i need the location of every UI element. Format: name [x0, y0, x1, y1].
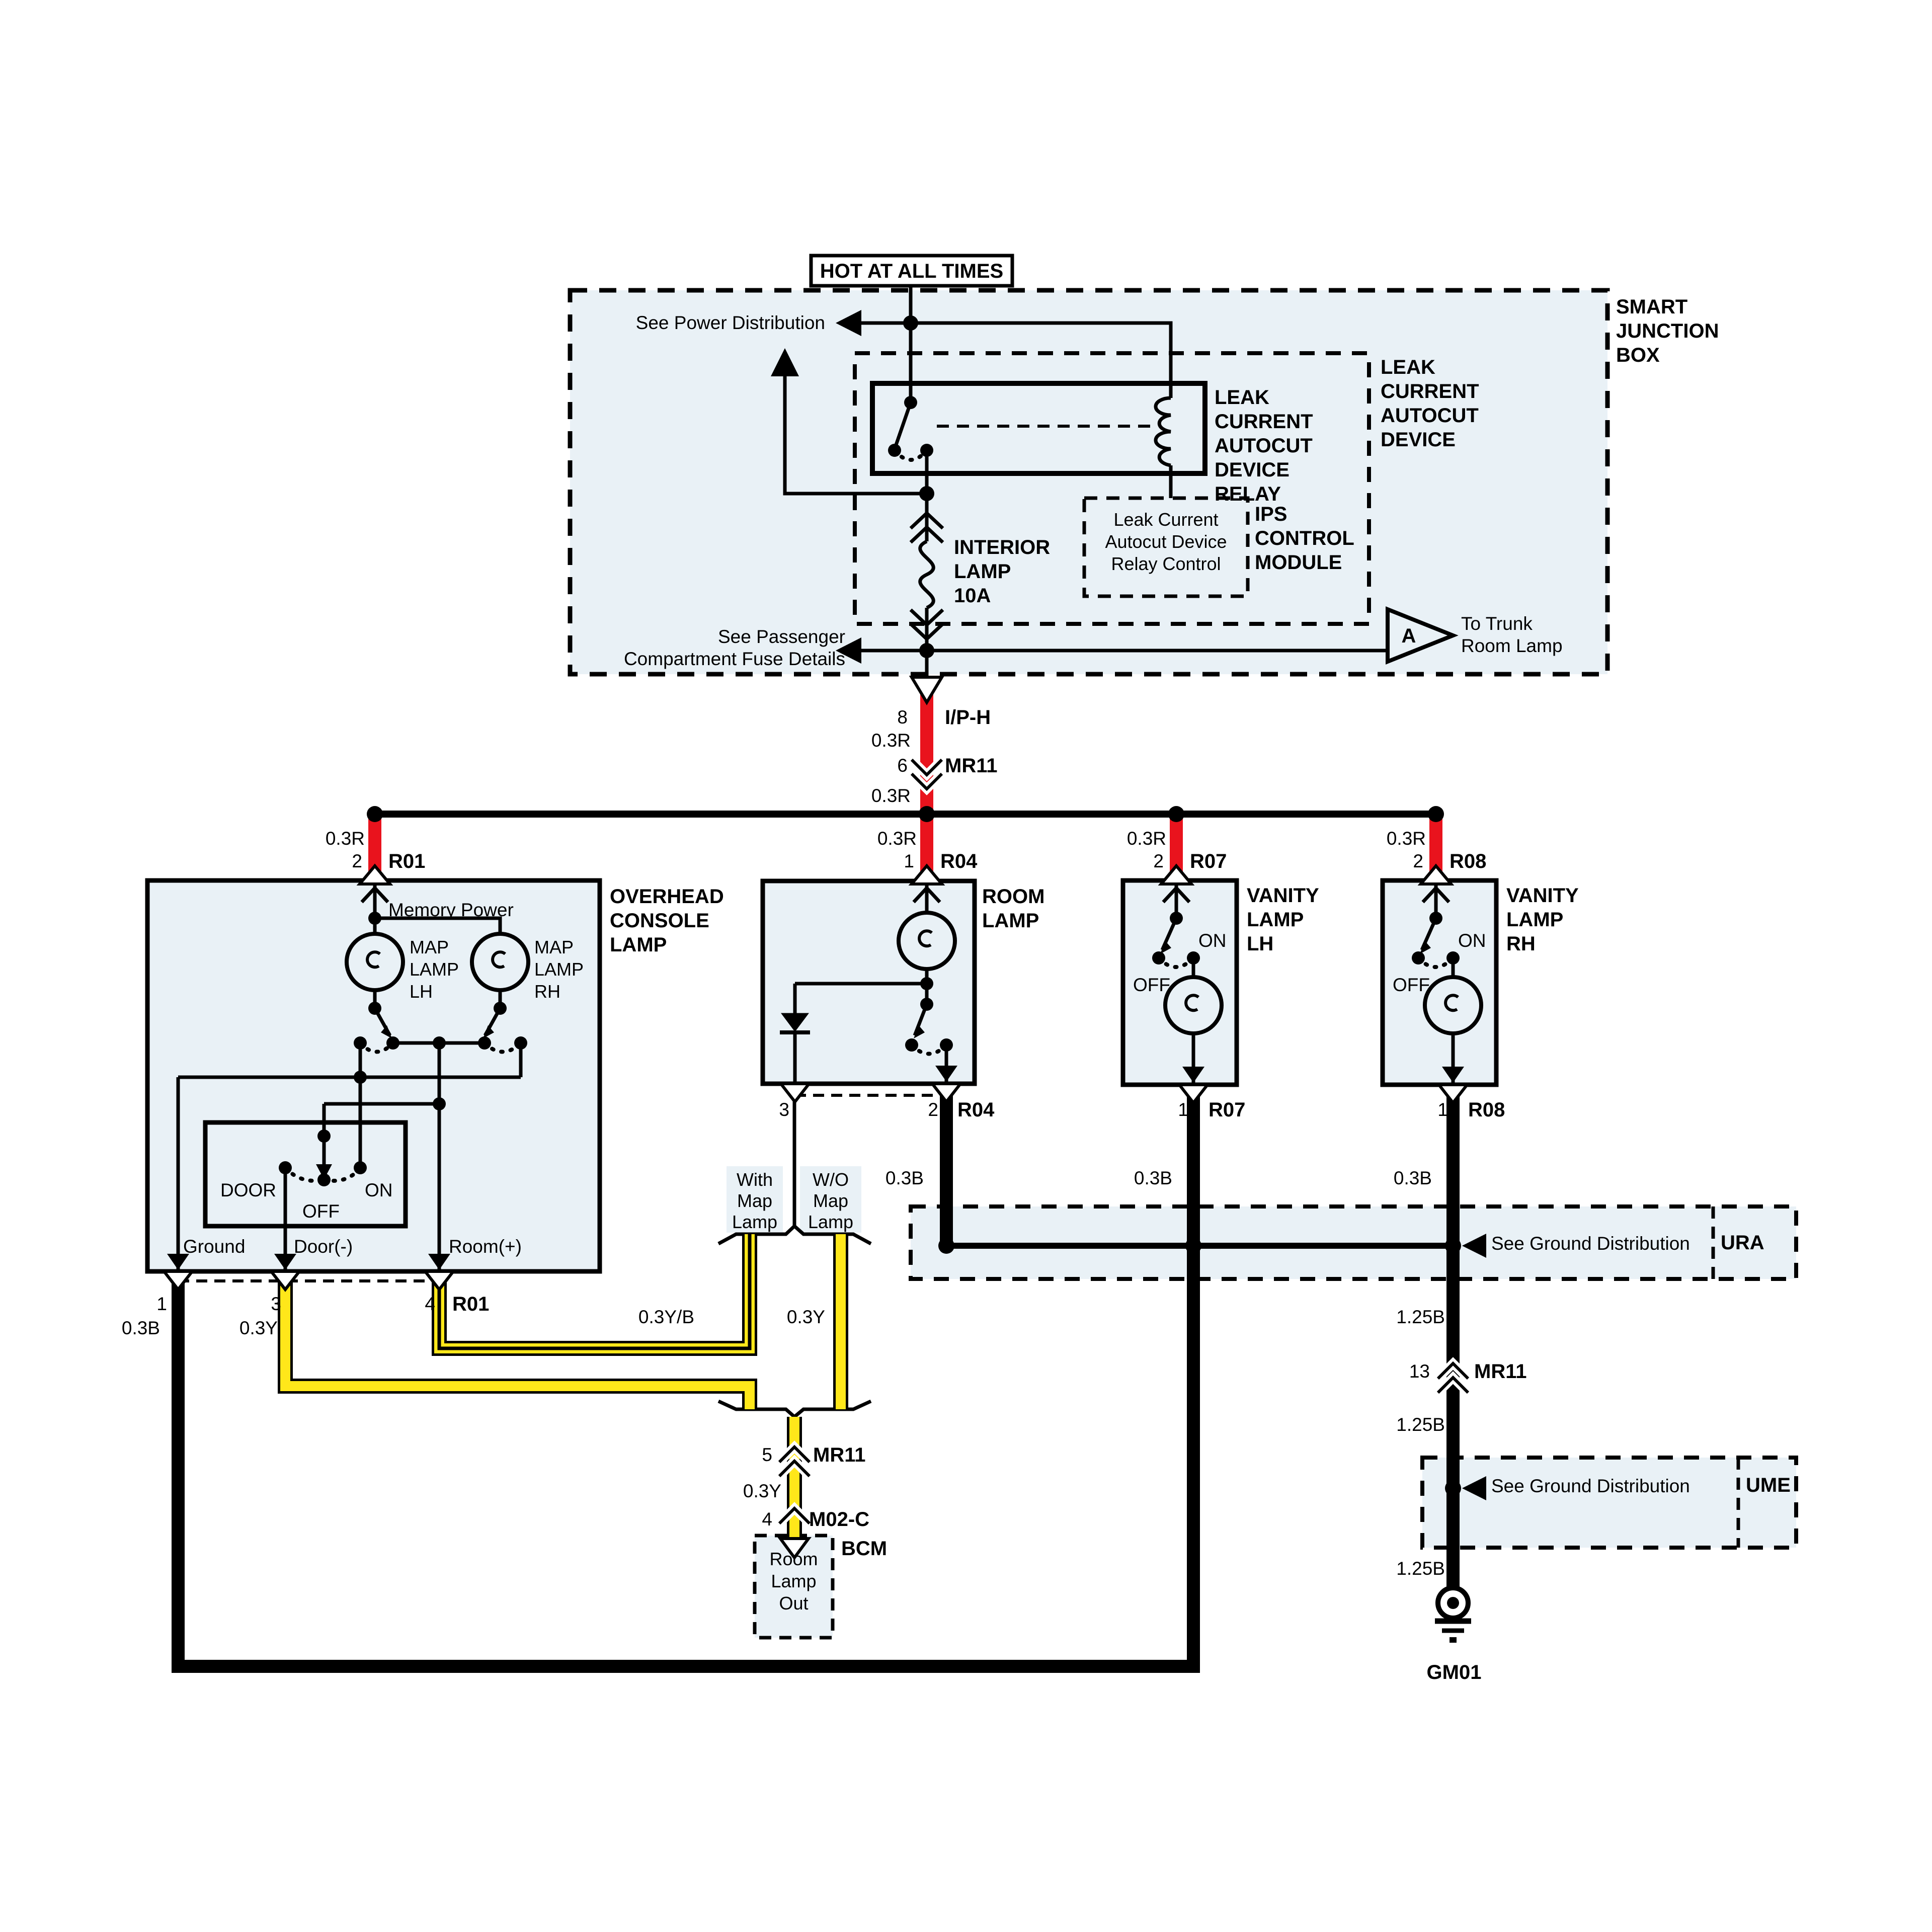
console-label-2: CONSOLE: [610, 909, 709, 933]
r01-name-top: R01: [388, 849, 425, 873]
r04-ground-pin: 2: [906, 1099, 938, 1121]
bcm-signal-3: Out: [756, 1593, 832, 1614]
sjb-label-2: JUNCTION: [1616, 319, 1719, 343]
room-lamp-label-1: ROOM: [982, 884, 1044, 909]
map-rh-label-3: RH: [534, 981, 560, 1002]
ume-see-ground-label: See Ground Distribution: [1491, 1475, 1690, 1497]
bcm-label: BCM: [841, 1537, 887, 1561]
vanity-lh-off-label: OFF: [1133, 974, 1170, 996]
mr11-5-pin: 5: [740, 1444, 772, 1466]
console-room-exit-chevron: [425, 1271, 453, 1290]
r01-name-bottom: R01: [452, 1292, 489, 1316]
wire-03b-room: 0.3B: [863, 1167, 924, 1189]
fuse-label-2: LAMP: [954, 559, 1011, 584]
r08-name-bottom: R08: [1468, 1098, 1505, 1122]
console-on-label: ON: [365, 1179, 393, 1201]
console-label-3: LAMP: [610, 933, 667, 957]
r08-ground-pin: 1: [1416, 1099, 1448, 1121]
ume-box-fill: [1422, 1458, 1796, 1548]
trunk-ref-letter: A: [1389, 624, 1429, 648]
ground-terminal-label: Ground: [183, 1236, 245, 1258]
mr11-5-name: MR11: [813, 1443, 866, 1467]
wire-03r-r08: 0.3R: [1371, 828, 1426, 850]
vanity-rh-label-3: RH: [1506, 932, 1536, 956]
vanity-rh-bulb: [1425, 977, 1481, 1033]
diagram-art: [0, 0, 1932, 1932]
ips-label-1: IPS: [1255, 502, 1287, 526]
mr11-6-pin: 6: [875, 755, 908, 777]
relay-label-4: DEVICE: [1215, 458, 1290, 482]
wo-map-label-2: Map: [800, 1190, 861, 1212]
smart-junction-box-fill: [570, 290, 1607, 674]
ips-signal-2: Autocut Device: [1085, 531, 1247, 552]
with-map-label-3: Lamp: [727, 1212, 783, 1233]
fuse-label-1: INTERIOR: [954, 535, 1050, 559]
wiring-diagram: HOT AT ALL TIMES See Power Distribution …: [0, 0, 1932, 1932]
with-map-label-1: With: [727, 1169, 783, 1190]
lcad-label-2: CURRENT: [1381, 379, 1479, 404]
mr11-13-pin: 13: [1390, 1360, 1430, 1383]
ips-signal-3: Relay Control: [1085, 553, 1247, 575]
relay-label-2: CURRENT: [1215, 410, 1313, 434]
r01-feed-pin: 2: [330, 850, 362, 872]
wire-125b-2: 1.25B: [1372, 1414, 1445, 1436]
r07-name-top: R07: [1190, 849, 1227, 873]
vanity-rh-on-label: ON: [1458, 930, 1486, 952]
vanity-lh-bulb: [1165, 977, 1222, 1033]
wire-125b-1: 1.25B: [1372, 1306, 1445, 1328]
see-passenger-label-2: Compartment Fuse Details: [553, 648, 845, 670]
m02c-name: M02-C: [809, 1507, 869, 1532]
bcm-signal-2: Lamp: [756, 1571, 832, 1592]
wire-03b-console: 0.3B: [100, 1317, 160, 1339]
map-lamp-rh-bulb: [472, 934, 528, 990]
vanity-lh-label-2: LAMP: [1247, 908, 1304, 932]
mr11-13-name: MR11: [1474, 1359, 1527, 1384]
iph-pin: 8: [875, 706, 908, 729]
bcm-signal-1: Room: [756, 1549, 832, 1570]
wire-03y-womap: 0.3Y: [765, 1306, 825, 1328]
vanity-rh-label-2: LAMP: [1506, 908, 1563, 932]
mr11-6-name: MR11: [945, 754, 998, 778]
m02c-pin: 4: [740, 1508, 772, 1531]
vanity-lh-label-3: LH: [1247, 932, 1273, 956]
wire-03b-vanity-lh: 0.3B: [1112, 1167, 1172, 1189]
map-lamp-lh-bulb: [347, 934, 403, 990]
map-rh-label-1: MAP: [534, 937, 574, 958]
ips-label-3: MODULE: [1255, 550, 1342, 575]
ume-code: UME: [1746, 1473, 1791, 1497]
r04-name-top: R04: [940, 849, 977, 873]
r07-name-bottom: R07: [1209, 1098, 1245, 1122]
see-passenger-label-1: See Passenger: [553, 626, 845, 648]
lcad-label-1: LEAK: [1381, 355, 1435, 379]
wo-map-label-1: W/O: [800, 1169, 861, 1190]
wire-03r-r04: 0.3R: [861, 828, 917, 850]
hot-at-all-times-label: HOT AT ALL TIMES: [811, 259, 1012, 283]
wire-03r-main-2: 0.3R: [855, 785, 911, 807]
to-trunk-label-2: Room Lamp: [1461, 635, 1563, 657]
wire-03yb-label: 0.3Y/B: [624, 1306, 694, 1328]
wire-03y-console: 0.3Y: [217, 1317, 278, 1339]
room-lamp-label-2: LAMP: [982, 909, 1039, 933]
with-map-label-2: Map: [727, 1190, 783, 1212]
map-lh-label-3: LH: [410, 981, 433, 1002]
r04-feed-pin: 1: [882, 850, 914, 872]
see-power-distribution-label: See Power Distribution: [604, 312, 825, 334]
gm01-ground-symbol: [1435, 1588, 1471, 1643]
wire-125b-3: 1.25B: [1372, 1558, 1445, 1580]
wire-03r-main-1: 0.3R: [855, 730, 911, 752]
map-lh-label-2: LAMP: [410, 959, 459, 980]
r04-diode-pin: 3: [757, 1099, 789, 1121]
relay-label-1: LEAK: [1215, 385, 1269, 410]
wire-03r-r07: 0.3R: [1111, 828, 1166, 850]
map-lh-label-1: MAP: [410, 937, 449, 958]
console-label-1: OVERHEAD: [610, 884, 724, 909]
sjb-label-3: BOX: [1616, 343, 1660, 367]
console-off-label: OFF: [302, 1200, 340, 1223]
wire-03y-bcm: 0.3Y: [721, 1480, 781, 1502]
to-trunk-label-1: To Trunk: [1461, 613, 1533, 635]
vanity-lh-label-1: VANITY: [1247, 883, 1319, 908]
ura-code: URA: [1721, 1231, 1764, 1255]
lcad-label-4: DEVICE: [1381, 428, 1456, 452]
r07-feed-pin: 2: [1132, 850, 1164, 872]
vanity-rh-label-1: VANITY: [1506, 883, 1579, 908]
lcad-label-3: AUTOCUT: [1381, 404, 1479, 428]
r01-door-pin: 3: [249, 1293, 281, 1315]
vanity-rh-off-label: OFF: [1393, 974, 1430, 996]
room-lamp-bulb: [899, 913, 955, 969]
door-label: DOOR: [220, 1179, 276, 1201]
map-rh-label-2: LAMP: [534, 959, 584, 980]
wire-03b-vanity-rh: 0.3B: [1372, 1167, 1432, 1189]
relay-label-3: AUTOCUT: [1215, 434, 1313, 458]
iph-name: I/P-H: [945, 705, 991, 730]
memory-power-label: Memory Power: [388, 899, 514, 921]
fuse-label-3: 10A: [954, 584, 991, 608]
r01-ground-pin: 1: [135, 1293, 167, 1315]
r07-ground-pin: 1: [1156, 1099, 1188, 1121]
sjb-label-1: SMART: [1616, 295, 1687, 319]
ips-label-2: CONTROL: [1255, 526, 1354, 550]
door-neg-terminal-label: Door(-): [294, 1236, 353, 1258]
wire-03r-r01: 0.3R: [309, 828, 365, 850]
ips-signal-1: Leak Current: [1085, 509, 1247, 530]
gm01-label: GM01: [1418, 1660, 1490, 1684]
ura-see-ground-label: See Ground Distribution: [1491, 1233, 1690, 1255]
r08-name-top: R08: [1450, 849, 1486, 873]
r04-name-bottom: R04: [957, 1098, 994, 1122]
wo-map-label-3: Lamp: [800, 1212, 861, 1233]
r08-feed-pin: 2: [1391, 850, 1423, 872]
vanity-lh-on-label: ON: [1198, 930, 1227, 952]
r01-room-pin: 4: [403, 1293, 435, 1315]
iph-connector-arrow: [912, 677, 942, 702]
room-pos-terminal-label: Room(+): [449, 1236, 522, 1258]
